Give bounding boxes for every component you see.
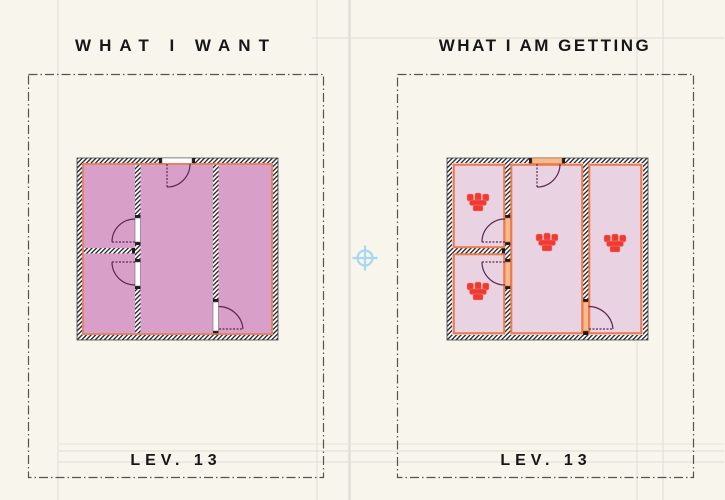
origin-crosshair-icon <box>353 246 378 271</box>
right-sheet-title[interactable]: WHAT I AM GETTING <box>397 36 693 56</box>
right-floor-plan[interactable] <box>447 158 648 340</box>
drawing-canvas: WHAT I WANT WHAT I AM GETTING LEV. 13 LE… <box>0 0 725 500</box>
left-level-label[interactable]: LEV. 13 <box>28 452 324 470</box>
left-floor-plan[interactable] <box>77 158 278 340</box>
drawing-graphics <box>0 0 725 500</box>
right-level-label[interactable]: LEV. 13 <box>398 452 694 470</box>
left-sheet-title[interactable]: WHAT I WANT <box>28 36 324 56</box>
